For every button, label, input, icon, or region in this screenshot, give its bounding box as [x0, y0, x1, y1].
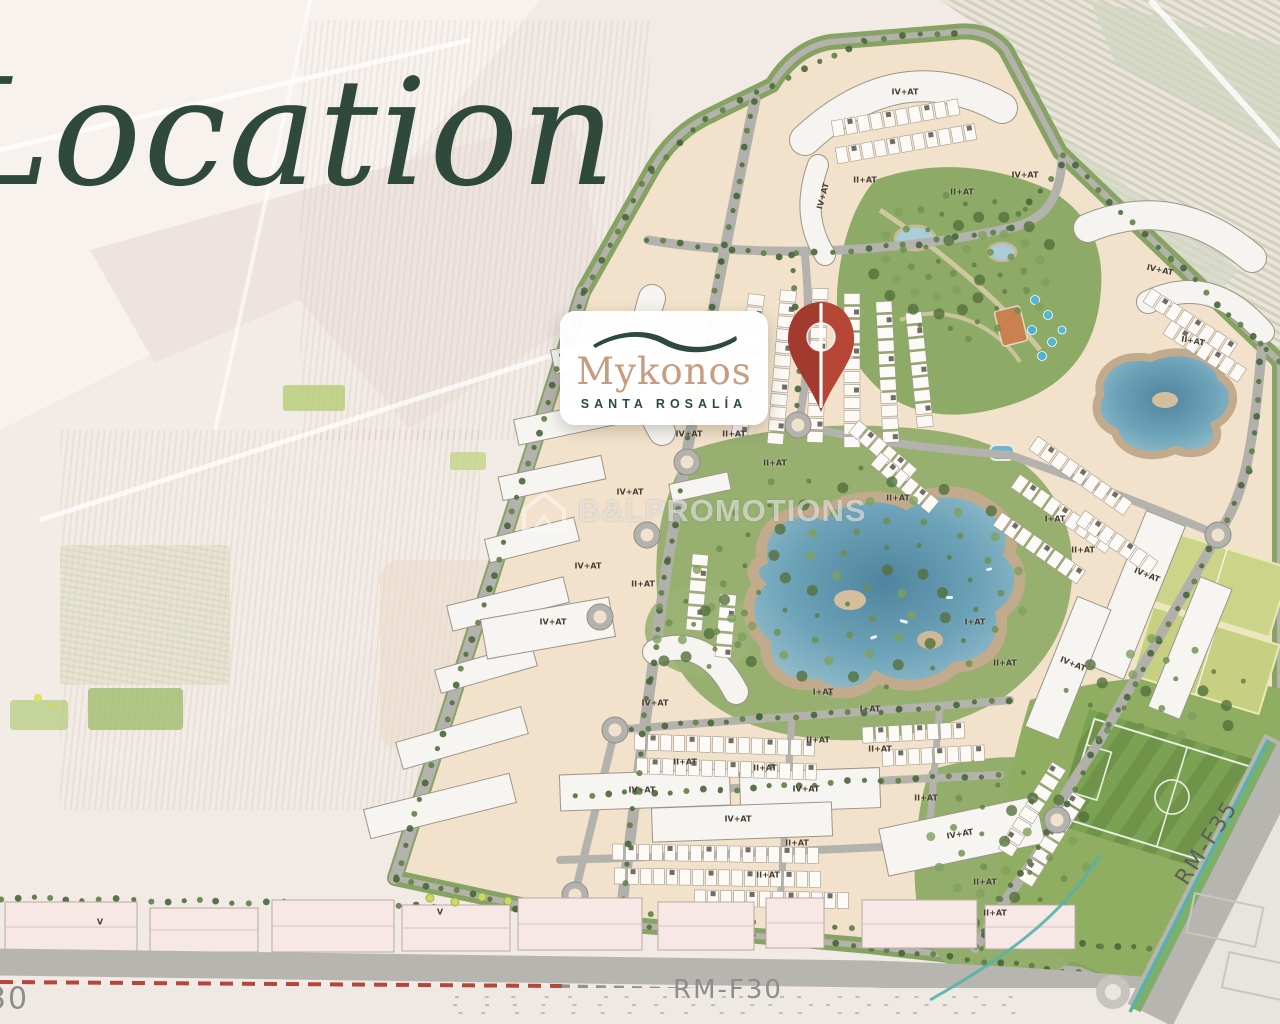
building-label: II+AT	[886, 494, 910, 503]
building-label: IV+AT	[815, 182, 831, 210]
road-label: RM-F35	[1171, 796, 1244, 889]
building-label: IV+AT	[1146, 263, 1174, 277]
watermark-text: B&LPROMOTIONS	[578, 493, 867, 529]
building-label: II+AT	[983, 909, 1007, 918]
location-pin-icon	[784, 299, 858, 417]
building-label: IV+AT	[1133, 566, 1161, 584]
building-label: II+AT	[753, 764, 777, 773]
building-label: IV+AT	[676, 430, 703, 439]
building-label: IV+AT	[1012, 171, 1039, 180]
building-label: IV+AT	[892, 88, 919, 97]
building-label: II+AT	[1181, 335, 1206, 348]
building-label: II+AT	[868, 745, 892, 754]
building-label: II+AT	[631, 580, 655, 589]
location-slide: IV+ATII+ATIV+ATII+ATIV+ATIV+ATII+ATIV+AT…	[0, 0, 1280, 1024]
building-label: II+AT	[1071, 546, 1095, 555]
building-label: IV+AT	[575, 562, 602, 571]
building-label: I+AT	[813, 688, 834, 697]
building-label: II+AT	[722, 430, 746, 439]
brand-subtitle: SANTA ROSALÍA	[581, 397, 747, 411]
building-label: II+AT	[673, 758, 697, 767]
building-label: I+AT	[860, 705, 881, 714]
road-label: 30	[0, 982, 29, 1017]
building-label: II+AT	[950, 188, 974, 197]
building-label: IV+AT	[793, 785, 820, 794]
building-label: V	[97, 918, 103, 927]
road-label: RM-F30	[673, 975, 783, 1005]
building-label: II+AT	[806, 736, 830, 745]
building-label: II+AT	[973, 878, 997, 887]
building-label: II+AT	[914, 794, 938, 803]
building-label: II+AT	[993, 659, 1017, 668]
building-label: I+AT	[1045, 515, 1066, 524]
building-label: II+AT	[785, 839, 809, 848]
building-label: II+AT	[756, 871, 780, 880]
house-logo-icon	[518, 488, 570, 534]
building-label: IV+AT	[629, 786, 656, 795]
page-title: Location	[0, 52, 618, 215]
building-label: II+AT	[853, 176, 877, 185]
building-label: I+AT	[965, 618, 986, 627]
building-label: IV+AT	[1059, 655, 1087, 673]
building-label: IV+AT	[540, 618, 567, 627]
watermark: B&LPROMOTIONS	[518, 488, 867, 534]
brand-name: Mykonos	[576, 353, 752, 392]
building-label: V	[437, 908, 443, 917]
brand-card: Mykonos SANTA ROSALÍA	[560, 311, 768, 425]
building-label: II+AT	[763, 459, 787, 468]
building-label: IV+AT	[946, 827, 974, 841]
building-label: IV+AT	[642, 699, 669, 708]
building-label: IV+AT	[725, 815, 752, 824]
